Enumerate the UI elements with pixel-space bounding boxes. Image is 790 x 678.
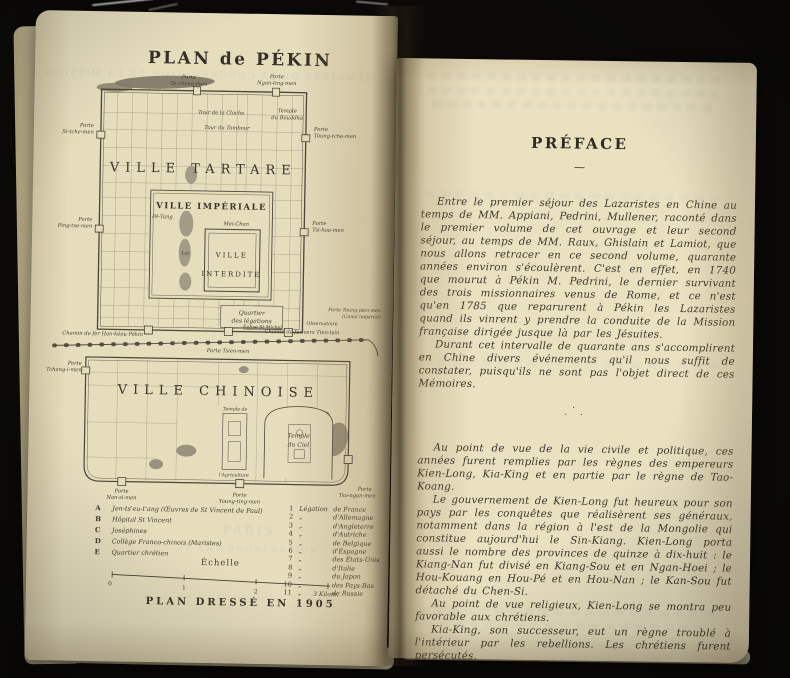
legend-legation-country: d'Angleterre [333,522,374,531]
legend-letter-label: Jen-ts'eu-t'ang (Œuvres de St Vincent de… [112,504,262,515]
map-label-chemin-fer-est: Chemin de fer vers Tien-tsin [264,329,339,336]
map-label-porte-tchang-i-men: Tchang-i-men [46,367,82,374]
map-label-ville-interdite: INTERDITE [201,270,261,279]
map-label-porte-ping-tse-men: Ping-tse-men [57,223,93,230]
map-label-ville-tartare: VILLE TARTARE [109,160,297,178]
map-label-porte: Porte [357,487,372,493]
map-label-porte: Porte [79,123,94,129]
legend-legation-country: de Belgique [333,539,372,548]
map-label-porte: Porte [231,492,246,498]
map-label-porte-tsien-men: Porte Tsien-men [206,348,250,355]
preface-heading: PRÉFACE [422,132,738,154]
map-label-porte-nan-si-men: Nan-si-men [105,495,136,502]
scratch-mark [92,0,154,6]
map-label-chemin-fer-ouest: Chemin de fer Han-kéou Pékin [62,330,143,338]
map-label-temple-du-ciel: du Ciel [288,441,310,448]
legend-legation-number: 2 [279,513,299,521]
legend-letter-key: B [95,514,106,523]
map-label-temple-du-ciel: Temple [287,432,310,439]
legend-legation-number: 3 [279,521,299,529]
legend-legation-country: d'Autriche [333,530,367,539]
map-label-porte: Porte [313,127,328,133]
preface-paragraph: Kia-King, son successeur, eut un règne t… [415,623,732,666]
asterism-divider: · · · [418,403,734,421]
pekin-map: VILLE TARTARE VILLE IMPÉRIALE VILLE INTE… [35,66,387,512]
legend-legation-ditto: „ [299,530,333,539]
map-label-temple-agriculture: Temple de [223,406,248,412]
legend-letter-key: C [95,525,106,534]
legend-legation-ditto: „ [299,538,333,547]
preface-paragraph: Au point de vue de la vie civile et poli… [417,441,734,497]
map-label-observatoire: Observatoire [307,321,338,328]
map-label-porte-tsi-hoa-men: Tsi-hoa-men [312,227,344,234]
legend-letter-label: Hôpital St Vincent [112,515,172,524]
map-label-pe-tang: Pé-Tang [151,213,174,220]
map-label-porte-te-cheng-men: Te-cheng-men [170,81,207,88]
map-label-tour-tambour: Tour du Tambour [204,125,250,132]
legend-legation-ditto: „ [299,513,333,522]
book-photo: MÉMOIRES DE LA CONGRÉGATION DE LA MISSIO… [0,0,790,678]
scale-tick: 0 [108,580,112,587]
left-page: MÉMOIRES DE LA CONGRÉGATION DE LA MISSIO… [25,10,398,666]
right-page: PRÉFACE — Entre le premier séjour des La… [389,58,757,663]
preface-paragraph: Durant cet intervalle de quarante ans s'… [418,338,735,394]
map-label-temple-bouddha: du Bouddha [271,115,303,122]
map-label-porte-tso-ngan-men: Tso-ngan-men [339,493,376,500]
map-label-porte: Porte [77,217,92,223]
map-scale: Échelle 0 1 2 3 Kilom. [98,551,349,597]
map-label-porte: Porte [269,74,284,80]
map-label-ville-chinoise: VILLE CHINOISE [117,382,320,401]
preface-text-column: PRÉFACE — Entre le premier séjour des La… [414,58,739,678]
map-label-porte: Porte [67,361,82,367]
legend-legation-ditto: „ [299,521,333,530]
legend-legation-country: d'Allemagne [333,514,373,523]
legend-legation-number: 5 [279,538,299,546]
map-label-temple-agriculture: l'Agriculture [219,472,249,479]
scale-tick: 3 Kilom. [313,591,338,598]
legend-letter-key: A [95,503,106,512]
preface-paragraphs-1: Entre le premier séjour des Lazaristes e… [418,195,737,394]
scratch-mark [356,1,388,6]
heading-divider: — [421,158,737,175]
map-label-lac: Lac [180,251,190,257]
map-label-porte: Porte [181,75,196,81]
map-label-ville-interdite: VILLE [215,251,248,260]
map-label-canal-imperial: (Canal impérial) [342,313,381,321]
legend-legation-number: 4 [279,529,299,537]
scale-tick: 2 [254,588,258,595]
map-label-quartier-legations: Quartier [239,310,266,317]
preface-paragraph: Entre le premier séjour des Lazaristes e… [419,195,737,342]
map-label-porte: Porte [114,488,129,494]
scale-title: Échelle [201,556,240,569]
legend-legation-number: 6 [279,546,299,554]
legend-legation-country: de France [333,505,366,514]
map-label-porte-si-tche-men: Si-tche-men [62,129,94,136]
legend-letter-label: Joséphines [112,526,147,535]
scratch-mark [148,3,178,11]
legend-letter-label: Collège Franco-chinois (Maristes) [112,537,222,547]
legend-legation-ditto: Légation [299,505,333,514]
map-label-mei-chan: Mei-Chan [222,221,249,227]
map-label-quartier-legations: des légations [231,317,271,325]
legend-letter-key: D [95,536,106,545]
map-label-porte-toung-tche-men: Toung-tche-men [314,133,357,140]
map-label-tour-cloche: Tour de la Cloche [198,110,244,117]
legend-legation-number: 1 [279,504,299,512]
map-label-porte-toung-pien-men: Porte Toung-pien-men [327,307,381,314]
preface-paragraphs-2: Au point de vue de la vie civile et poli… [415,441,734,666]
temple-of-agriculture [222,413,247,469]
map-label-porte: Porte [311,221,326,227]
scale-tick: 1 [182,585,186,592]
preface-paragraph: Le gouvernement de Kien-Long fut heureux… [415,493,732,601]
map-label-porte-ngan-ting-men: Ngan-ting-men [256,80,297,87]
map-label-temple-bouddha: Temple [278,108,297,114]
forbidden-city [204,229,260,292]
